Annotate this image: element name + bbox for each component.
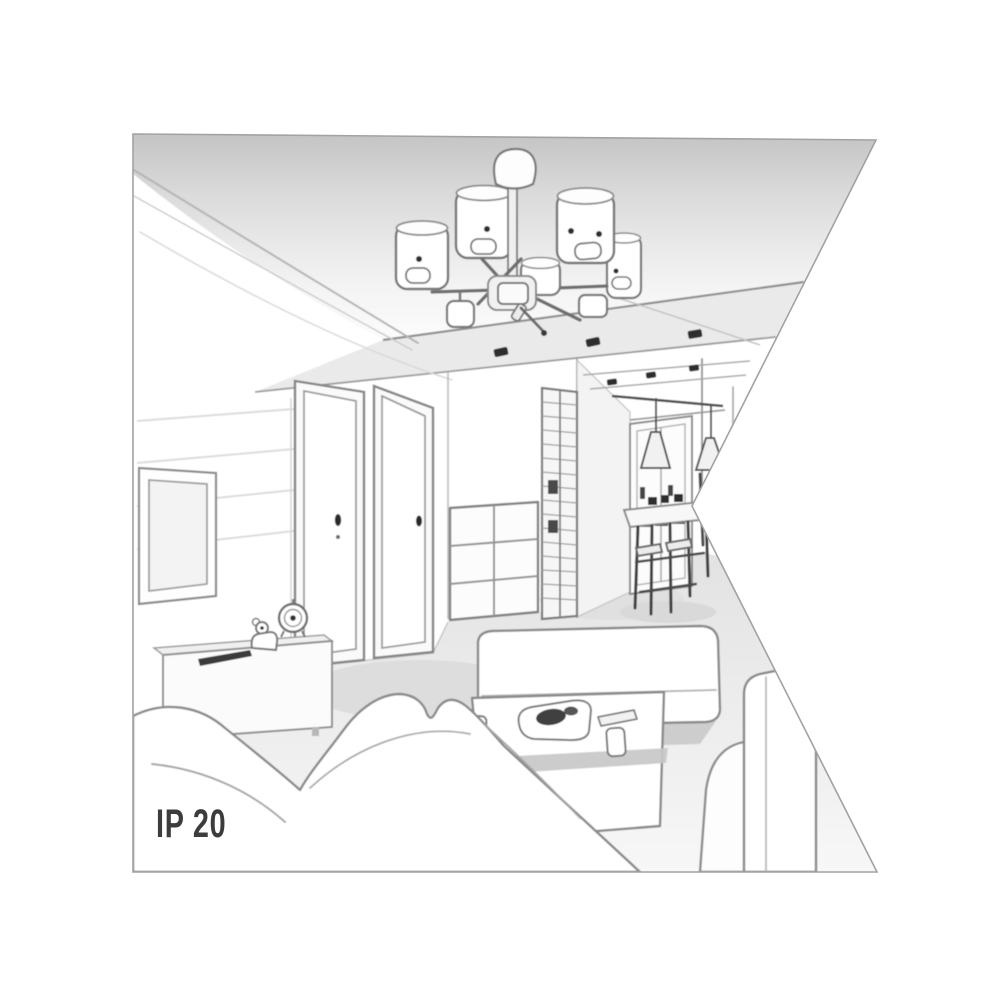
door-handle-icon (335, 514, 341, 526)
room-illustration: IP 20 (0, 0, 1000, 1000)
wardrobe-handle-icon (548, 520, 558, 533)
wardrobe-handle-icon (548, 480, 558, 494)
product-context-image: IP 20 (0, 0, 1000, 1000)
lamp-shade-icon (396, 221, 448, 289)
lamp-shade-icon (456, 186, 512, 259)
food-item (564, 707, 578, 716)
sideboard-leg (312, 727, 319, 736)
ceiling-canopy (494, 149, 536, 189)
lamp-shade-icon (557, 188, 614, 263)
drawing (0, 0, 1000, 1000)
ip-rating-label: IP 20 (156, 801, 226, 846)
lamp-hub (498, 283, 528, 304)
ip-rating: IP 20 (156, 801, 226, 846)
tv-screen (149, 480, 207, 591)
interior-door-2 (374, 386, 433, 658)
slatted-wardrobe (542, 388, 577, 619)
right-sofa-armrest (744, 666, 816, 872)
keyhole-icon (336, 535, 340, 539)
door-handle-icon (416, 516, 422, 527)
chest-of-drawers (450, 502, 538, 620)
cup (606, 727, 626, 756)
